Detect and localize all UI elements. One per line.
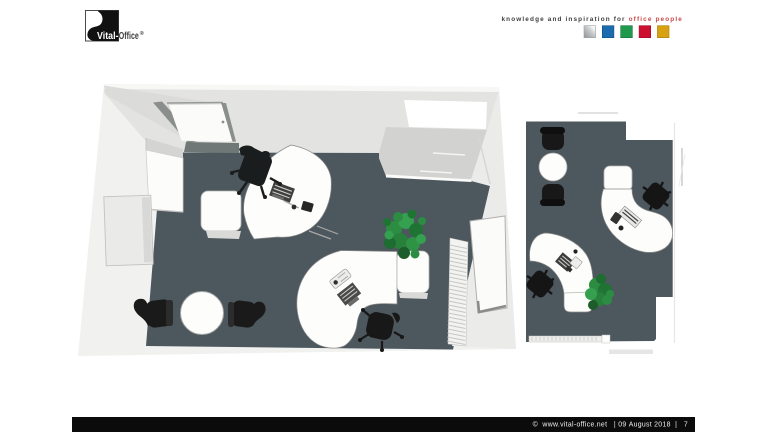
svg-text:Vital-: Vital- xyxy=(97,31,119,42)
svg-text:© www.vital-office.net | 09: © www.vital-office.net | 09 August 2018 … xyxy=(533,420,688,428)
svg-text:Office: Office xyxy=(119,31,139,42)
svg-text:®: ® xyxy=(140,30,144,37)
svg-text:knowledge and inspiration for: knowledge and inspiration for office peo… xyxy=(501,16,683,23)
